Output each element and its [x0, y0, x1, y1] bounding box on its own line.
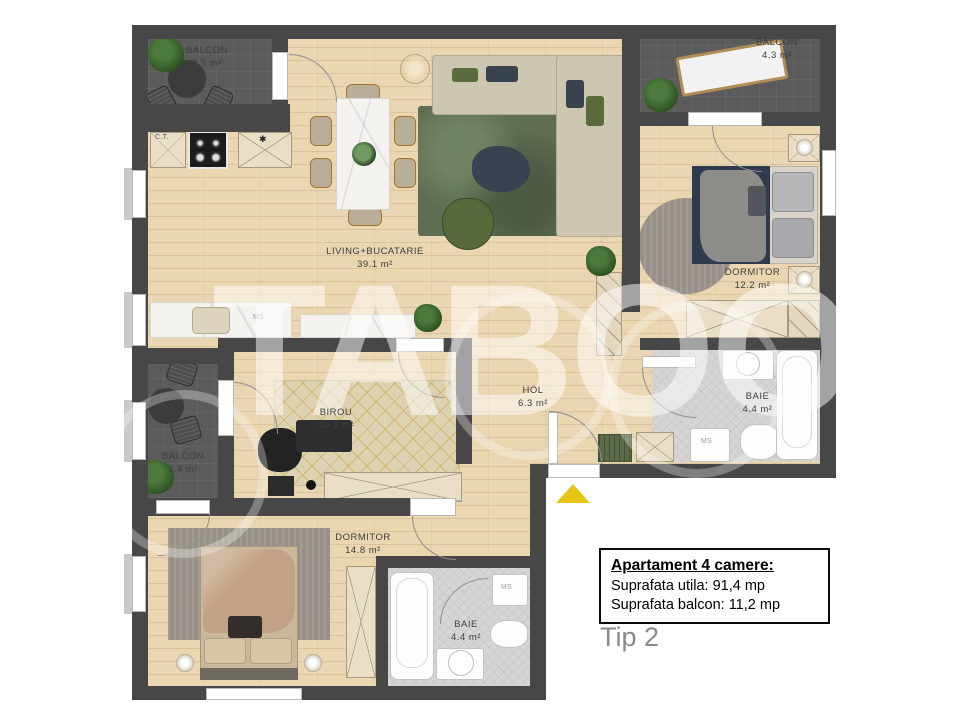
room-area: 12.2 m² — [690, 279, 815, 292]
entrance-arrow — [556, 484, 590, 503]
room-name: BALCON — [148, 450, 218, 463]
wardrobe-bottom-bedroom — [346, 566, 376, 678]
floor-lamp — [304, 654, 322, 672]
dining-chair — [394, 116, 416, 146]
nightstand-lamp — [796, 139, 813, 156]
bed-right-pillow — [772, 172, 814, 212]
info-surface-utila: Suprafata utila: 91,4 mp — [611, 577, 818, 596]
sofa-pillow-navy — [486, 66, 518, 82]
sofa-pillow-navy-2 — [566, 80, 584, 108]
stove — [188, 131, 228, 169]
balcony-tr-plant — [644, 78, 678, 112]
window — [132, 556, 146, 612]
room-area: 4.3 m² — [722, 49, 832, 62]
room-name: BAIE — [420, 618, 512, 631]
door-bedroom-bottom — [410, 498, 456, 516]
wall-bottom-block-right — [530, 464, 546, 700]
room-area: 10.2 m² — [288, 419, 384, 432]
room-label-dormitor-bottom: DORMITOR 14.8 m² — [300, 531, 426, 558]
room-label-balcon-left: BALCON 3.4 m² — [148, 450, 218, 477]
dining-chair — [310, 158, 332, 188]
room-name: BALCON — [147, 44, 267, 57]
room-area: 3.4 m² — [148, 463, 218, 476]
sofa-pillow-green — [452, 68, 478, 82]
room-label-balcon-tr: BALCON 4.3 m² — [722, 36, 832, 63]
room-name: DORMITOR — [690, 266, 815, 279]
room-area: 4.4 m² — [710, 403, 805, 416]
room-area: 6.3 m² — [485, 397, 581, 410]
floor-lamp — [176, 654, 194, 672]
bed-right-accent-pillow — [748, 186, 766, 216]
room-area: 39.1 m² — [270, 258, 480, 271]
office-decor-dots — [306, 480, 316, 490]
sink-basin-bottom — [448, 650, 474, 676]
info-title: Apartament 4 camere: — [611, 556, 818, 577]
star-label: ✱ — [259, 134, 267, 145]
room-name: BALCON — [722, 36, 832, 49]
room-label-baie-tr: BAIE 4.4 m² — [710, 390, 805, 417]
window — [132, 170, 146, 218]
room-name: HOL — [485, 384, 581, 397]
wall-bottom — [132, 686, 546, 700]
bed-bottom-pillow — [204, 638, 246, 664]
washer-bottom-ms-label: MS — [501, 584, 512, 591]
dining-chair — [348, 208, 382, 226]
room-area: 4.4 m² — [420, 631, 512, 644]
bed-bottom-pillow — [250, 638, 292, 664]
window-sill — [124, 168, 132, 220]
entry-door-opening — [548, 464, 600, 478]
door-balcony-tl — [272, 52, 288, 100]
room-name: BIROU — [288, 406, 384, 419]
room-name: DORMITOR — [300, 531, 426, 544]
info-panel: Apartament 4 camere: Suprafata utila: 91… — [599, 548, 830, 624]
room-label-hol: HOL 6.3 m² — [485, 384, 581, 411]
wall-kitchen-back — [132, 104, 290, 132]
room-label-baie-bottom: BAIE 4.4 m² — [420, 618, 512, 645]
bed-bottom-headboard — [200, 668, 298, 680]
floorplan-canvas: C.T. ✱ MS MS MS — [0, 0, 962, 720]
coffee-table — [472, 146, 530, 192]
room-name: BAIE — [710, 390, 805, 403]
room-label-balcon-tl: BALCON 3.5 m² — [147, 44, 267, 71]
pendant-lamp — [400, 54, 430, 84]
room-name: LIVING+BUCATARIE — [270, 245, 480, 258]
bed-bottom-accent-pillow — [228, 616, 262, 638]
ct-label: C.T. — [155, 134, 169, 141]
room-area: 3.5 m² — [147, 57, 267, 70]
door-balcony-tr — [688, 112, 762, 126]
window-sill — [124, 292, 132, 348]
room-label-birou: BIROU 10.2 m² — [288, 406, 384, 433]
room-label-dormitor-tr: DORMITOR 12.2 m² — [690, 266, 815, 293]
window-sill — [124, 554, 132, 614]
dining-chair — [394, 158, 416, 188]
wall-bath-bottom-divider — [376, 556, 388, 688]
island-centerpiece-plant — [352, 142, 376, 166]
dining-chair — [310, 116, 332, 146]
armchair-green — [442, 198, 494, 250]
office-printer-stand — [268, 476, 294, 496]
sofa-pillow-green-2 — [586, 96, 604, 126]
room-label-living: LIVING+BUCATARIE 39.1 m² — [270, 245, 480, 272]
window — [206, 688, 302, 700]
info-surface-balcon: Suprafata balcon: 11,2 mp — [611, 596, 818, 615]
room-area: 14.8 m² — [300, 544, 426, 557]
window — [822, 150, 836, 216]
window — [132, 294, 146, 346]
type-label: Tip 2 — [600, 622, 659, 653]
